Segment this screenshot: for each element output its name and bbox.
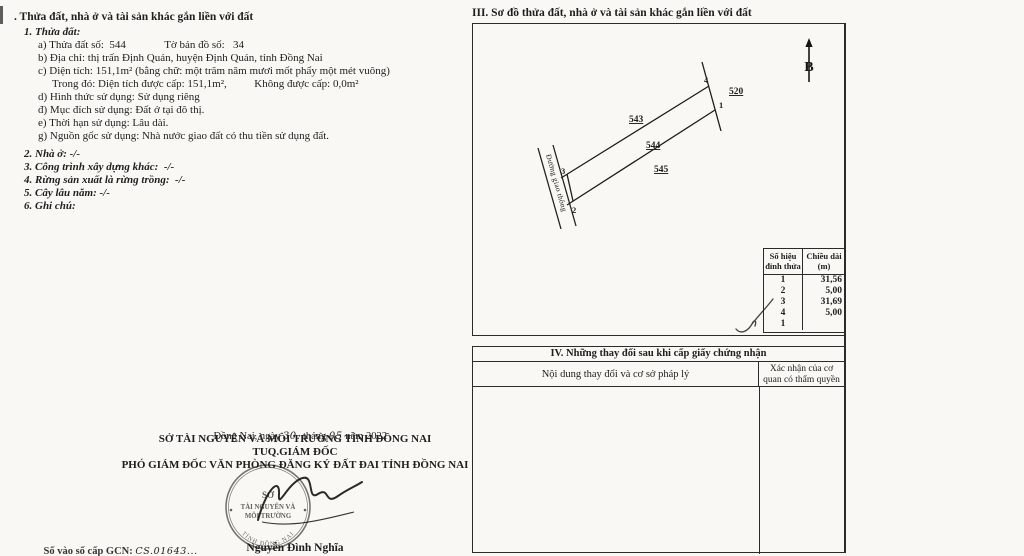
plot-543-label: 543 bbox=[629, 115, 644, 125]
vertex-3-label: 3 bbox=[561, 166, 565, 176]
land-certificate-page: . Thửa đất, nhà ở và tài sản khác gắn li… bbox=[0, 0, 1024, 556]
change-content-header: Nội dung thay đổi và cơ sở pháp lý bbox=[473, 362, 759, 386]
parcel-boundary bbox=[561, 62, 721, 205]
line-area-detail: Trong đó: Diện tích được cấp: 151,1m², K… bbox=[52, 78, 359, 90]
north-arrow-icon: B bbox=[804, 38, 813, 82]
vertex-col-header: Số hiệu đỉnh thửa bbox=[764, 249, 803, 274]
scan-edge-mark bbox=[0, 6, 3, 24]
authority-confirm-header: Xác nhận của cơ quan có thẩm quyền bbox=[759, 362, 844, 386]
authority-confirm-cell bbox=[760, 387, 844, 554]
length-col-header: Chiều dài (m) bbox=[803, 249, 845, 274]
line-area: c) Diện tích: 151,1m² (bằng chữ: một tră… bbox=[38, 65, 390, 77]
handwritten-checkmark bbox=[733, 293, 778, 338]
section2-item6: 6. Ghi chú: bbox=[24, 200, 76, 212]
section3-title: III. Sơ đồ thửa đất, nhà ở và tài sản kh… bbox=[472, 7, 752, 19]
plot-545-label: 545 bbox=[654, 165, 669, 175]
section4-title: IV. Những thay đổi sau khi cấp giấy chứn… bbox=[473, 347, 844, 362]
signer-name: Nguyễn Đình Nghĩa bbox=[60, 542, 530, 554]
section2-item3: 3. Công trình xây dựng khác: -/- bbox=[24, 161, 174, 173]
table-row: 1 31,56 bbox=[764, 275, 845, 286]
north-label: B bbox=[804, 60, 813, 75]
section2-item2: 2. Nhà ở: -/- bbox=[24, 148, 80, 160]
vertex-1-label: 1 bbox=[719, 100, 723, 110]
section2-item4: 4. Rừng sản xuất là rừng trồng: -/- bbox=[24, 174, 185, 186]
section4-header: Nội dung thay đổi và cơ sở pháp lý Xác n… bbox=[473, 362, 844, 387]
vertex-2-label: 2 bbox=[572, 205, 576, 215]
line-address: b) Địa chỉ: thị trấn Định Quán, huyện Đị… bbox=[38, 52, 323, 64]
line-use-form: d) Hình thức sử dụng: Sử dụng riêng bbox=[38, 91, 200, 103]
tuq-line: TUQ.GIÁM ĐỐC bbox=[60, 446, 530, 458]
section2-heading: . Thửa đất, nhà ở và tài sản khác gắn li… bbox=[14, 11, 253, 23]
section2-item1: 1. Thửa đất: bbox=[24, 26, 80, 38]
line-use-term: e) Thời hạn sử dụng: Lâu dài. bbox=[38, 117, 168, 129]
line-use-purpose: đ) Mục đích sử dụng: Đất ở tại đô thị. bbox=[38, 104, 204, 116]
plot-544-label: 544 bbox=[646, 141, 661, 151]
section2-item5: 5. Cây lâu năm: -/- bbox=[24, 187, 110, 199]
issuing-org: SỞ TÀI NGUYÊN VÀ MÔI TRƯỜNG TỈNH ĐỒNG NA… bbox=[60, 433, 530, 445]
line-parcel-number: a) Thửa đất số: 544 Tờ bản đồ số: 34 bbox=[38, 39, 244, 51]
ink-signature bbox=[250, 462, 375, 532]
line-use-origin: g) Nguồn gốc sử dụng: Nhà nước giao đất … bbox=[38, 130, 329, 142]
plot-520-label: 520 bbox=[729, 87, 744, 97]
vertex-table-header: Số hiệu đỉnh thửa Chiều dài (m) bbox=[764, 249, 845, 275]
